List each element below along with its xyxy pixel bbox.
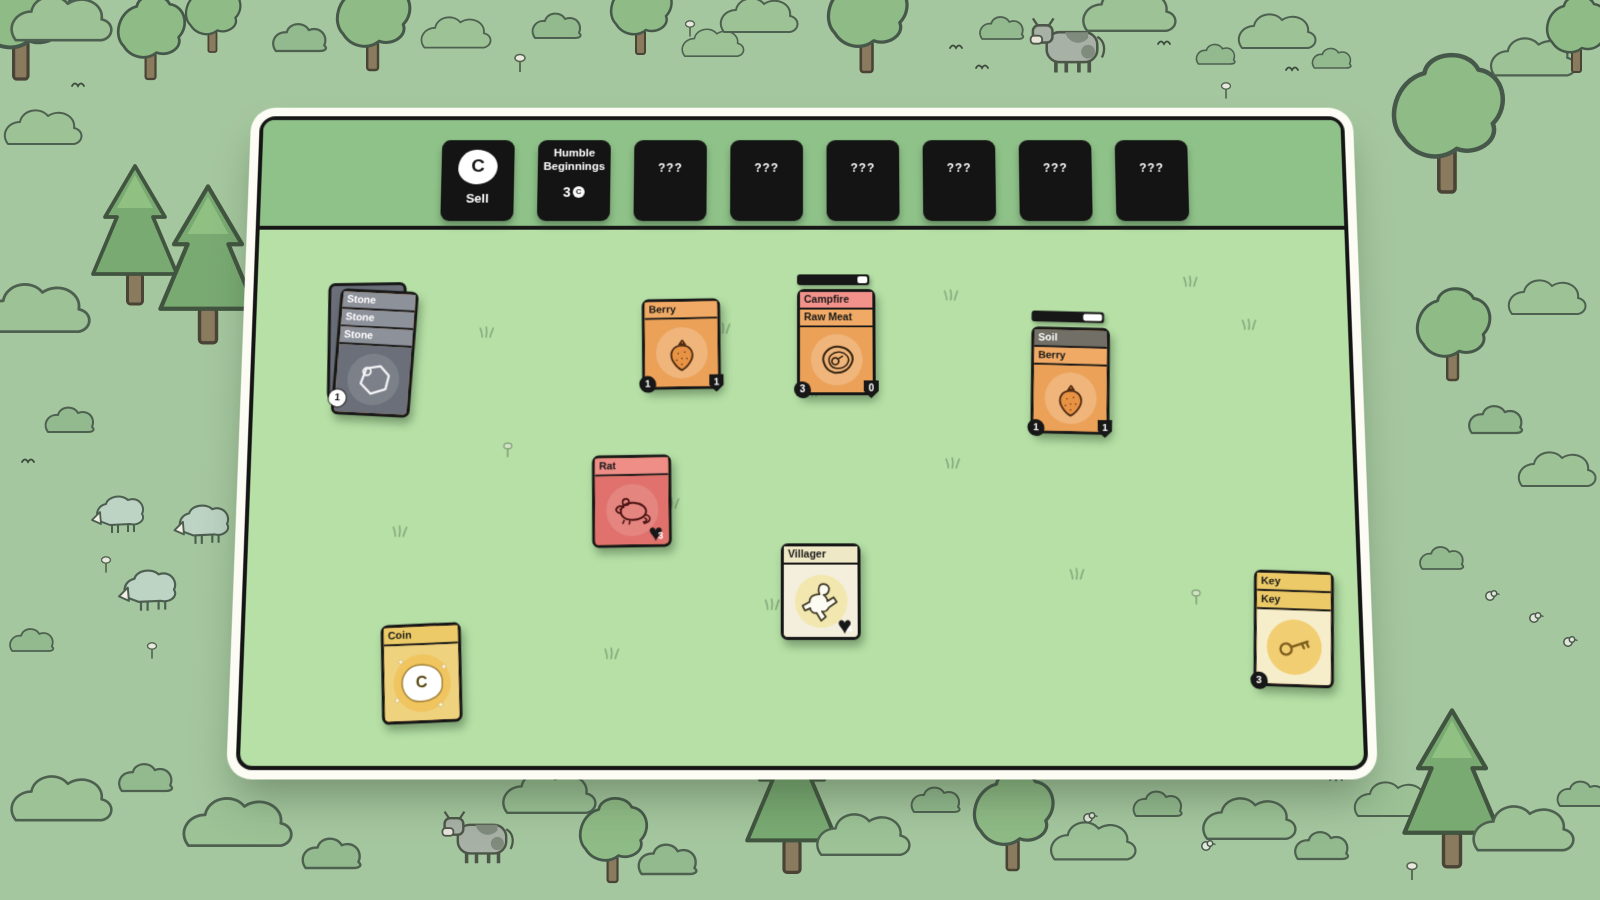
tree-icon [1417, 289, 1490, 380]
card-art: 3 0 [800, 327, 873, 392]
card-art: C ✦ ✦ ✦ ✦ [384, 644, 460, 722]
card-title: Villager [784, 546, 858, 564]
flower-icon [102, 557, 111, 573]
bird-icon [976, 66, 988, 69]
card-title: Berry [1034, 347, 1107, 367]
bird-icon [72, 84, 84, 87]
bush-icon [1239, 14, 1316, 48]
game-scene: C Sell Humble Beginnings 3 C ??? ??? ??? [0, 0, 1600, 900]
locked-pack-label: ??? [1043, 161, 1068, 174]
card-stack-soil[interactable]: Soil Berry 1 1 [1030, 311, 1110, 435]
bush-icon [1196, 44, 1234, 64]
bush-icon [10, 629, 53, 651]
bush-icon [682, 29, 743, 56]
locked-pack-card[interactable]: ??? [1019, 140, 1093, 221]
card-coin[interactable]: Coin C ✦ ✦ ✦ ✦ [381, 622, 463, 725]
tree-icon [1394, 55, 1503, 192]
locked-pack-label: ??? [851, 161, 876, 174]
locked-pack-card[interactable]: ??? [730, 140, 803, 221]
booster-pack-humble-beginnings[interactable]: Humble Beginnings 3 C [537, 140, 611, 221]
locked-pack-label: ??? [658, 161, 683, 174]
bush-icon [422, 17, 491, 47]
berry-icon [1044, 372, 1096, 425]
sheep-icon [119, 571, 175, 611]
raw-meat-icon [810, 334, 862, 385]
locked-pack-label: ??? [1139, 161, 1164, 174]
bird-icon [1202, 841, 1216, 850]
progress-bar [797, 274, 869, 285]
bird-icon [22, 460, 34, 463]
pack-price: 3 C [563, 184, 585, 199]
health-badge: ♥ 3 [649, 528, 673, 551]
card-title: Rat [595, 457, 668, 476]
tree-icon [337, 0, 410, 70]
bush-icon [1083, 0, 1175, 31]
bird-icon [1564, 637, 1578, 646]
locked-pack-label: ??? [754, 161, 779, 174]
value-badge: 3 [794, 381, 811, 398]
play-area: Stone Stone Stone 1 [240, 234, 1364, 766]
card-art: 1 [334, 344, 412, 415]
sparkle-icon: ✦ [440, 661, 448, 673]
card-berry[interactable]: Berry 1 1 [642, 298, 721, 390]
bird-icon [950, 46, 962, 49]
bush-icon [1312, 48, 1350, 68]
bird-icon [1158, 42, 1170, 45]
key-icon [1266, 619, 1321, 676]
locked-pack-card[interactable]: ??? [923, 140, 997, 221]
pack-title: Humble Beginnings [542, 148, 607, 174]
flower-icon [148, 643, 157, 659]
locked-pack-card[interactable]: ??? [633, 140, 706, 221]
sparkle-icon: ✦ [437, 699, 445, 711]
card-rat[interactable]: Rat [592, 454, 672, 548]
tree-icon [118, 0, 184, 79]
card-art: 1 1 [645, 319, 718, 387]
bush-icon [1519, 452, 1596, 486]
stone-card[interactable]: Stone Stone Stone 1 [330, 288, 419, 418]
value-badge: 3 [1250, 671, 1267, 689]
bush-icon [980, 17, 1023, 39]
bush-icon [1509, 280, 1586, 314]
card-title: Soil [1034, 329, 1107, 349]
card-stack-campfire[interactable]: Campfire Raw Meat 3 0 [797, 274, 876, 395]
sell-label: Sell [466, 191, 489, 205]
count-badge: 1 [328, 389, 346, 407]
flower-icon [515, 55, 525, 73]
berry-icon [655, 327, 707, 379]
stone-icon [345, 352, 401, 406]
bush-icon [303, 839, 361, 868]
pine-tree-icon [93, 166, 177, 304]
coin-icon: C ✦ ✦ ✦ ✦ [393, 653, 451, 713]
sell-card[interactable]: C Sell [440, 140, 515, 221]
locked-pack-card[interactable]: ??? [1115, 140, 1190, 221]
tree-icon [828, 0, 907, 72]
bush-icon [1558, 782, 1600, 806]
card-title: Campfire [800, 292, 872, 310]
bird-icon [1084, 813, 1098, 822]
progress-fill [857, 276, 867, 283]
bird-icon [1330, 778, 1342, 781]
card-art: ♥ 3 [595, 475, 669, 545]
sheep-icon [175, 506, 229, 544]
value-badge: 1 [639, 376, 656, 393]
bush-icon [119, 764, 172, 791]
bush-icon [273, 24, 326, 51]
bush-icon [533, 14, 581, 38]
coin-letter: C [471, 156, 485, 177]
value-badge: 1 [1027, 419, 1044, 436]
bird-icon [1286, 68, 1298, 71]
bush-icon [5, 110, 82, 144]
card-stack-key[interactable]: Key Key [1253, 569, 1333, 688]
bush-icon [721, 0, 798, 32]
card-art: 1 1 [1033, 365, 1106, 432]
progress-bar [1032, 311, 1105, 324]
bush-icon [1051, 822, 1135, 859]
sparkle-icon: ✦ [397, 657, 405, 669]
bush-icon [912, 788, 960, 812]
card-art: ♥ 4 [784, 565, 858, 637]
flower-icon [1407, 863, 1417, 881]
progress-fill [1083, 314, 1102, 321]
bush-icon [1469, 406, 1522, 433]
bush-icon [1134, 792, 1182, 816]
health-badge: ♥ 4 [837, 621, 861, 643]
sheep-icon [92, 497, 143, 533]
locked-pack-card[interactable]: ??? [827, 140, 900, 221]
card-villager[interactable]: Villager ♥ 4 [781, 543, 861, 640]
bush-icon [1295, 832, 1348, 859]
bush-icon [12, 776, 112, 820]
card-title: Raw Meat [800, 310, 872, 328]
card-title: Berry [645, 301, 718, 320]
tree-icon [186, 0, 240, 52]
pack-price-value: 3 [563, 184, 571, 199]
bush-icon [1420, 547, 1463, 569]
card-stack-stone[interactable]: Stone Stone Stone 1 [330, 288, 419, 418]
locked-pack-label: ??? [947, 161, 972, 174]
cow-icon [442, 812, 512, 864]
flower-icon [686, 21, 695, 37]
bird-icon [1486, 591, 1500, 600]
bush-icon [0, 284, 89, 331]
flower-icon [1222, 83, 1231, 99]
card-art: 3 [1257, 609, 1331, 685]
coin-icon: C [458, 150, 498, 185]
bush-icon [1203, 798, 1295, 838]
bush-icon [817, 814, 909, 854]
bush-icon [503, 772, 595, 812]
tree-icon [611, 0, 671, 54]
bird-icon [1530, 613, 1544, 622]
game-board: C Sell Humble Beginnings 3 C ??? ??? ??? [236, 116, 1369, 770]
bush-icon [46, 408, 94, 432]
bush-icon [184, 798, 291, 845]
sparkle-icon: ✦ [393, 695, 401, 707]
coin-icon: C [573, 186, 585, 198]
bush-icon [639, 845, 697, 874]
board-top-bar: C Sell Humble Beginnings 3 C ??? ??? ??? [260, 120, 1345, 230]
tree-icon [974, 771, 1053, 870]
